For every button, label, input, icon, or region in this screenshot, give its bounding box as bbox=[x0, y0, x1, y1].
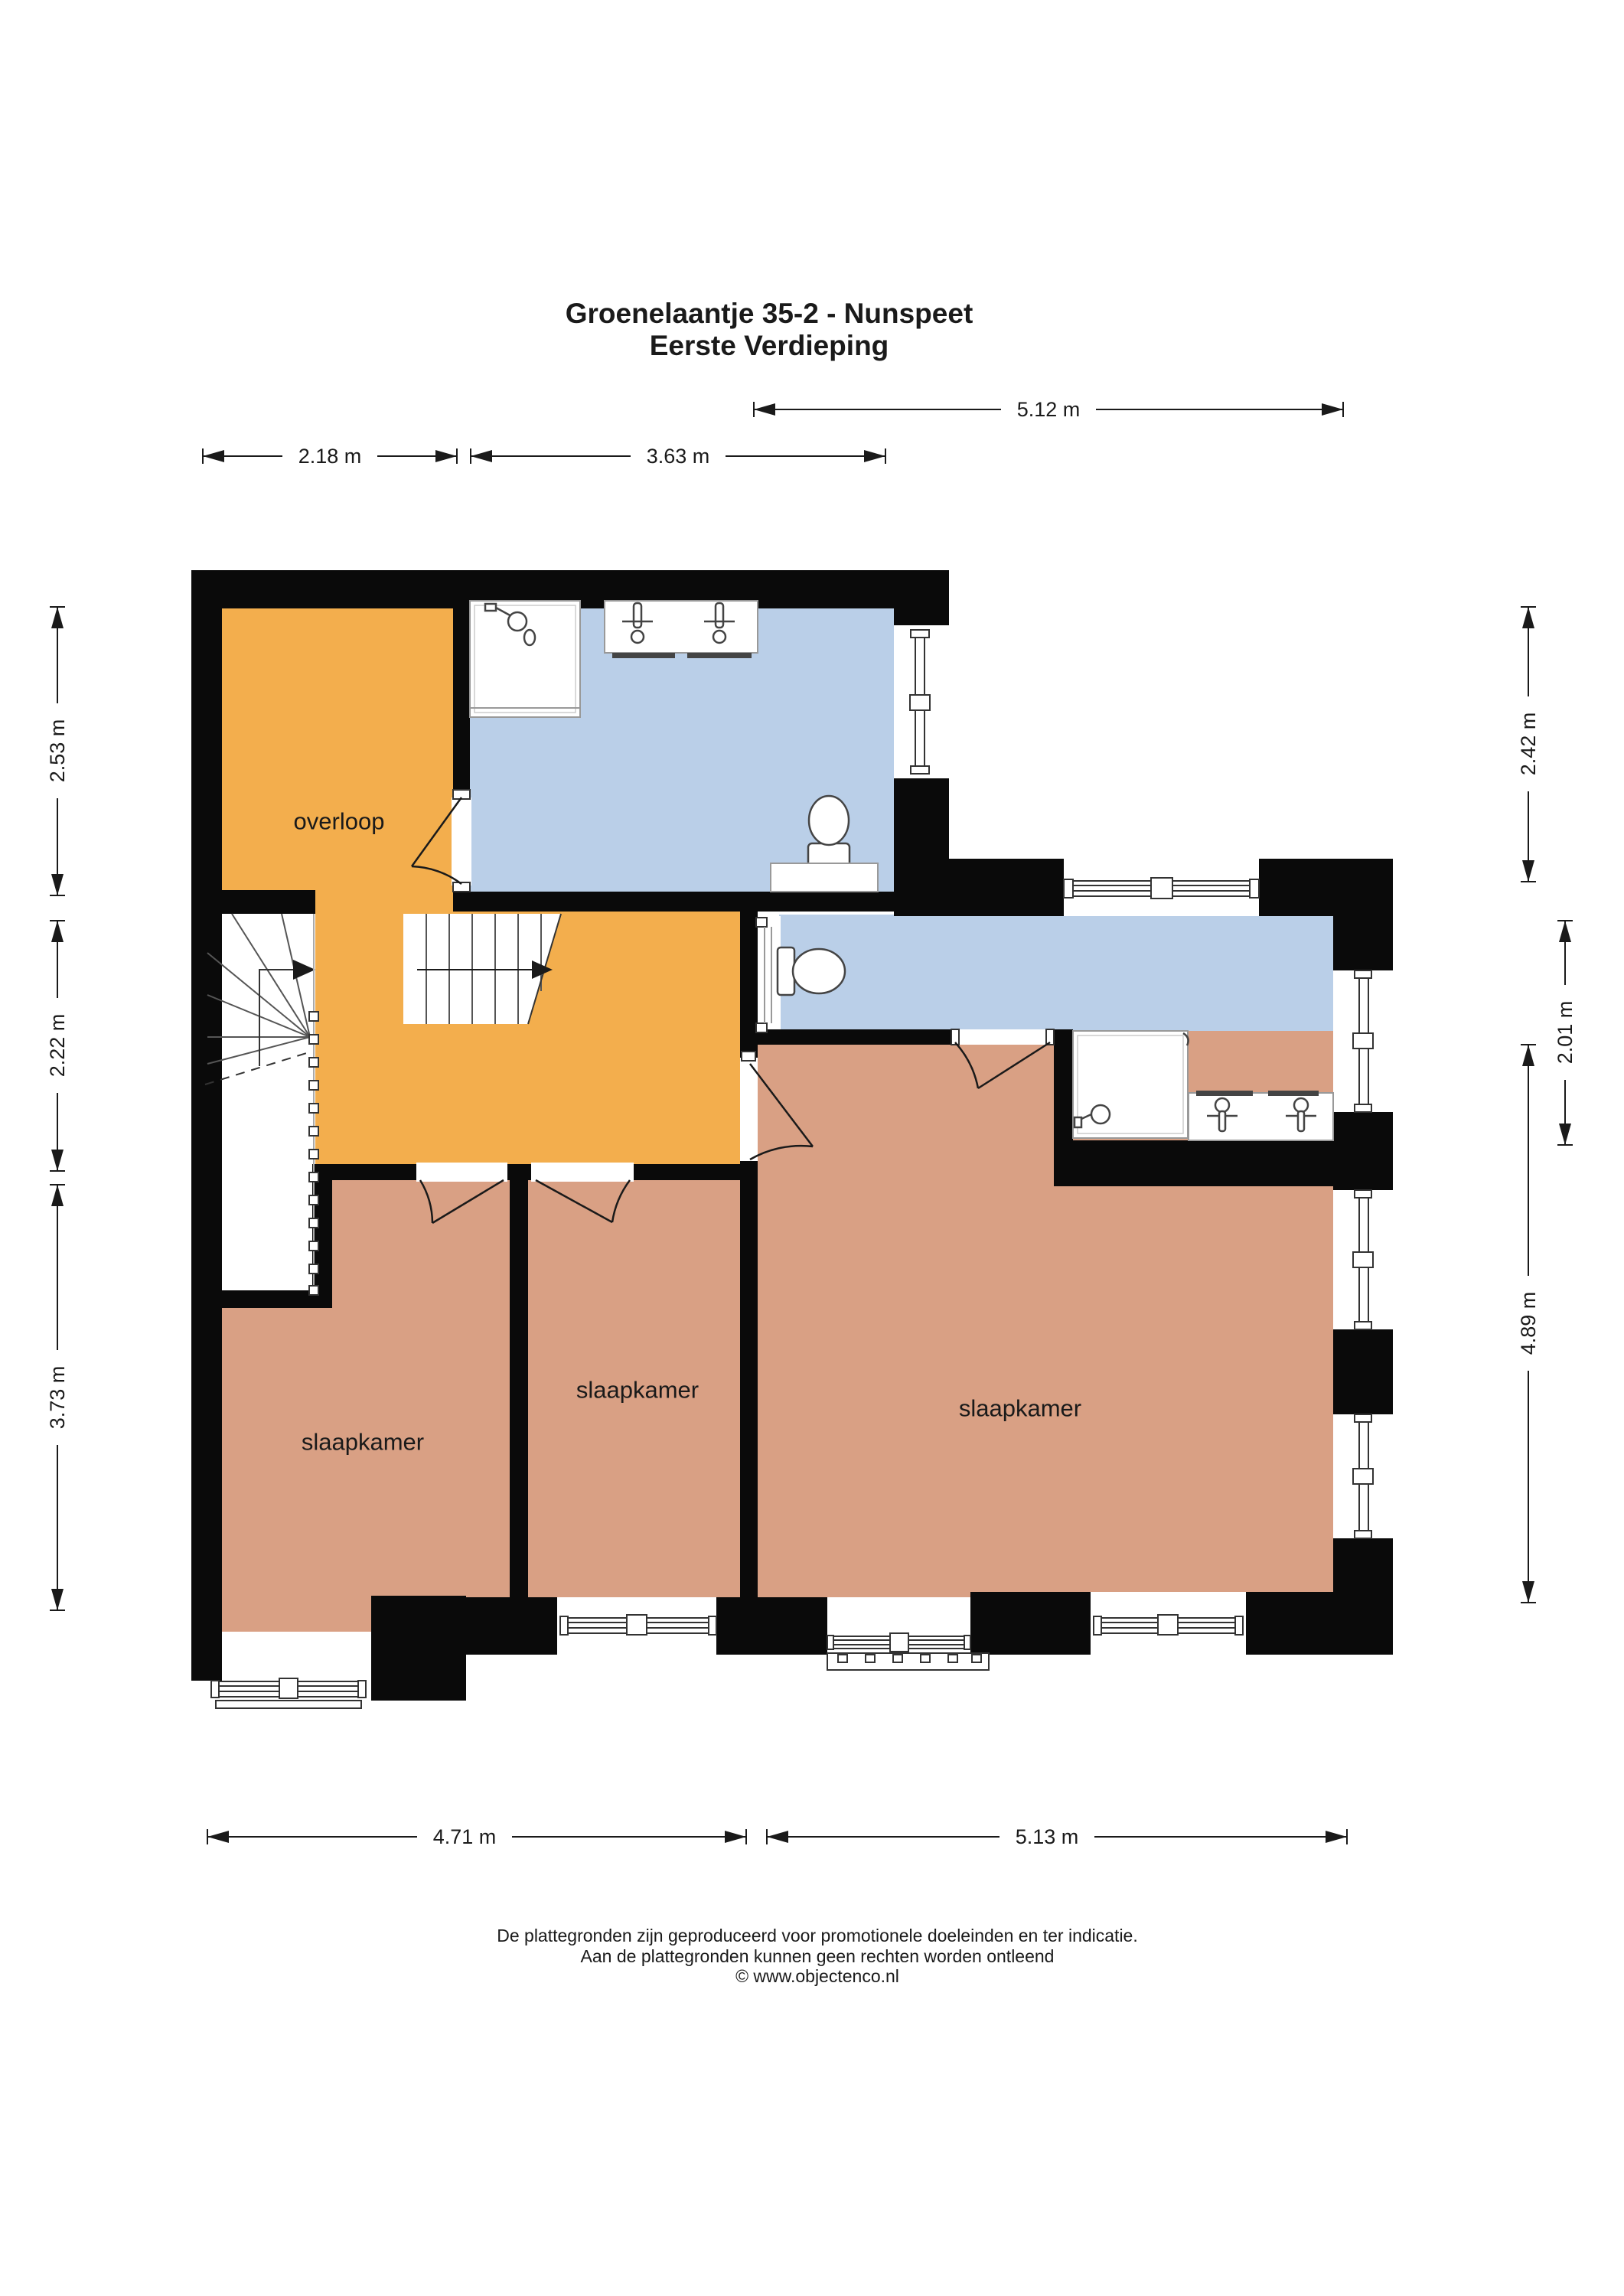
svg-text:4.89 m: 4.89 m bbox=[1517, 1292, 1540, 1355]
floorplan-drawing: overloop slaapkamer slaapkamer slaapkame… bbox=[0, 0, 1624, 2296]
dimension-bottom-right: 5.13 m bbox=[767, 1825, 1347, 1849]
window-bedroom-left-bay bbox=[211, 1678, 366, 1708]
room-label-bedroom-right: slaapkamer bbox=[959, 1395, 1081, 1422]
window-hall-north bbox=[1064, 878, 1259, 899]
room-label-overloop: overloop bbox=[294, 808, 385, 835]
svg-text:2.22 m: 2.22 m bbox=[46, 1014, 69, 1078]
dimension-top-middle: 3.63 m bbox=[471, 444, 885, 468]
shower-arm-icon bbox=[485, 604, 496, 611]
plan-title-line2: Eerste Verdieping bbox=[650, 330, 889, 361]
bathroom2-shower bbox=[1073, 1031, 1189, 1138]
svg-text:2.18 m: 2.18 m bbox=[298, 445, 362, 468]
footer-copyright: © www.objectenco.nl bbox=[735, 1966, 899, 1986]
bathroom2-double-washbasin bbox=[1189, 1091, 1333, 1140]
floorplan-page: overloop slaapkamer slaapkamer slaapkame… bbox=[0, 0, 1624, 2296]
room-label-bedroom-middle: slaapkamer bbox=[576, 1377, 699, 1404]
window-bedroom-right-south-2 bbox=[1094, 1615, 1243, 1635]
dimension-right-lower: 4.89 m bbox=[1516, 1045, 1541, 1603]
svg-text:3.73 m: 3.73 m bbox=[46, 1366, 69, 1430]
room-label-bedroom-left: slaapkamer bbox=[302, 1429, 424, 1456]
svg-text:4.71 m: 4.71 m bbox=[433, 1825, 497, 1848]
window-bedroom-middle-south bbox=[560, 1615, 716, 1635]
footer-disclaimer-line1: De plattegronden zijn geproduceerd voor … bbox=[497, 1926, 1138, 1945]
shower-arm-icon bbox=[1075, 1117, 1081, 1127]
bathroom1-shower bbox=[470, 601, 580, 717]
dimension-right-upper: 2.42 m bbox=[1516, 607, 1541, 882]
svg-text:2.01 m: 2.01 m bbox=[1554, 1001, 1577, 1065]
svg-text:2.53 m: 2.53 m bbox=[46, 719, 69, 783]
dimension-left-upper: 2.53 m bbox=[45, 607, 70, 895]
dimension-left-middle: 2.22 m bbox=[45, 921, 70, 1171]
bathroom1-toilet bbox=[808, 796, 850, 866]
svg-text:5.12 m: 5.12 m bbox=[1017, 398, 1081, 421]
dimension-left-lower: 3.73 m bbox=[45, 1185, 70, 1610]
plan-title-line1: Groenelaantje 35-2 - Nunspeet bbox=[566, 298, 973, 329]
shower-head-icon bbox=[508, 612, 527, 631]
dimension-top-left: 2.18 m bbox=[203, 444, 457, 468]
svg-text:5.13 m: 5.13 m bbox=[1016, 1825, 1079, 1848]
dimension-bottom-left: 4.71 m bbox=[207, 1825, 746, 1849]
dimension-top-right: 5.12 m bbox=[754, 397, 1343, 422]
bathroom2-toilet bbox=[778, 947, 845, 995]
dimension-right-middle: 2.01 m bbox=[1553, 921, 1577, 1145]
bathroom1-double-washbasin bbox=[605, 601, 758, 658]
shower-head-icon bbox=[1091, 1105, 1110, 1124]
footer-disclaimer-line2: Aan de plattegronden kunnen geen rechten… bbox=[581, 1946, 1055, 1966]
svg-text:3.63 m: 3.63 m bbox=[647, 445, 710, 468]
svg-text:2.42 m: 2.42 m bbox=[1517, 713, 1540, 776]
bathroom1-shelf bbox=[771, 863, 878, 892]
